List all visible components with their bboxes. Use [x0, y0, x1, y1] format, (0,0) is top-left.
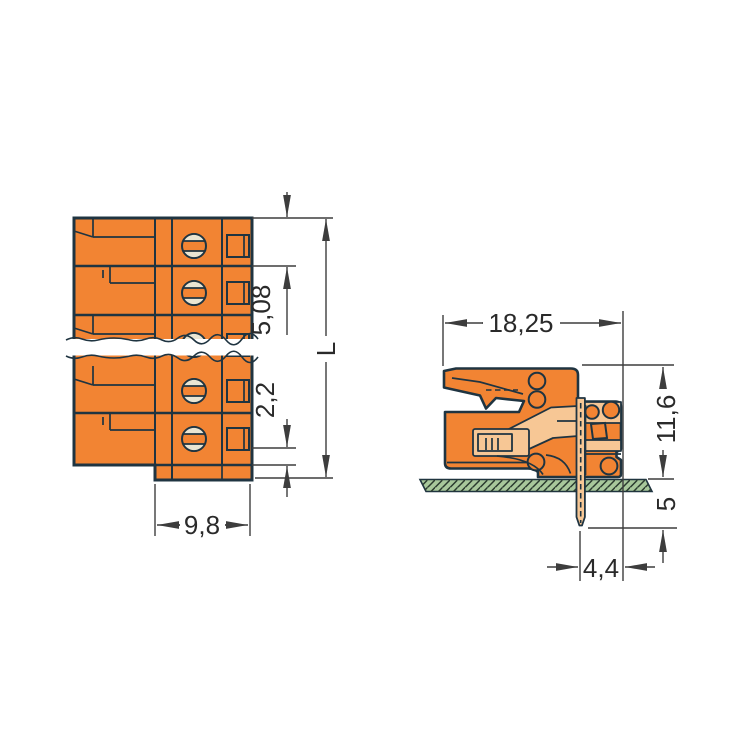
front-view [66, 218, 258, 480]
dimension-total-length: L [311, 219, 341, 477]
solder-pin [577, 398, 585, 526]
dimension-label-pin-offset: 4,4 [583, 553, 619, 583]
dimension-pin-offset: 4,4 [547, 553, 655, 583]
dimension-label-height: 11,6 [651, 395, 681, 444]
side-view [420, 369, 652, 526]
dimension-edge-offset: 2,2 [250, 382, 287, 497]
connector-drawing: 5,08 2,2 L 9,8 [0, 0, 750, 750]
dimension-label-pin-length: 5 [651, 497, 681, 511]
dimension-pin-length: 5 [651, 497, 681, 563]
dimension-label-block-width: 9,8 [184, 510, 220, 540]
dimension-label-edge-offset: 2,2 [250, 382, 280, 418]
wire-entry-inner [478, 434, 512, 451]
dimension-label-pin-spacing: 5,08 [246, 285, 276, 336]
screw-slot [182, 281, 206, 305]
pcb-board [420, 480, 652, 492]
dimension-label-total-length: L [311, 342, 341, 356]
screw-slot [182, 427, 206, 451]
dimension-height: 11,6 [651, 367, 681, 477]
technical-drawing-canvas: 5,08 2,2 L 9,8 [0, 0, 750, 750]
dimension-label-depth: 18,25 [488, 308, 553, 338]
screw-slot [182, 379, 206, 403]
screw-slot [182, 234, 206, 258]
dimension-block-width: 9,8 [157, 510, 248, 540]
dimension-depth: 18,25 [445, 308, 621, 338]
